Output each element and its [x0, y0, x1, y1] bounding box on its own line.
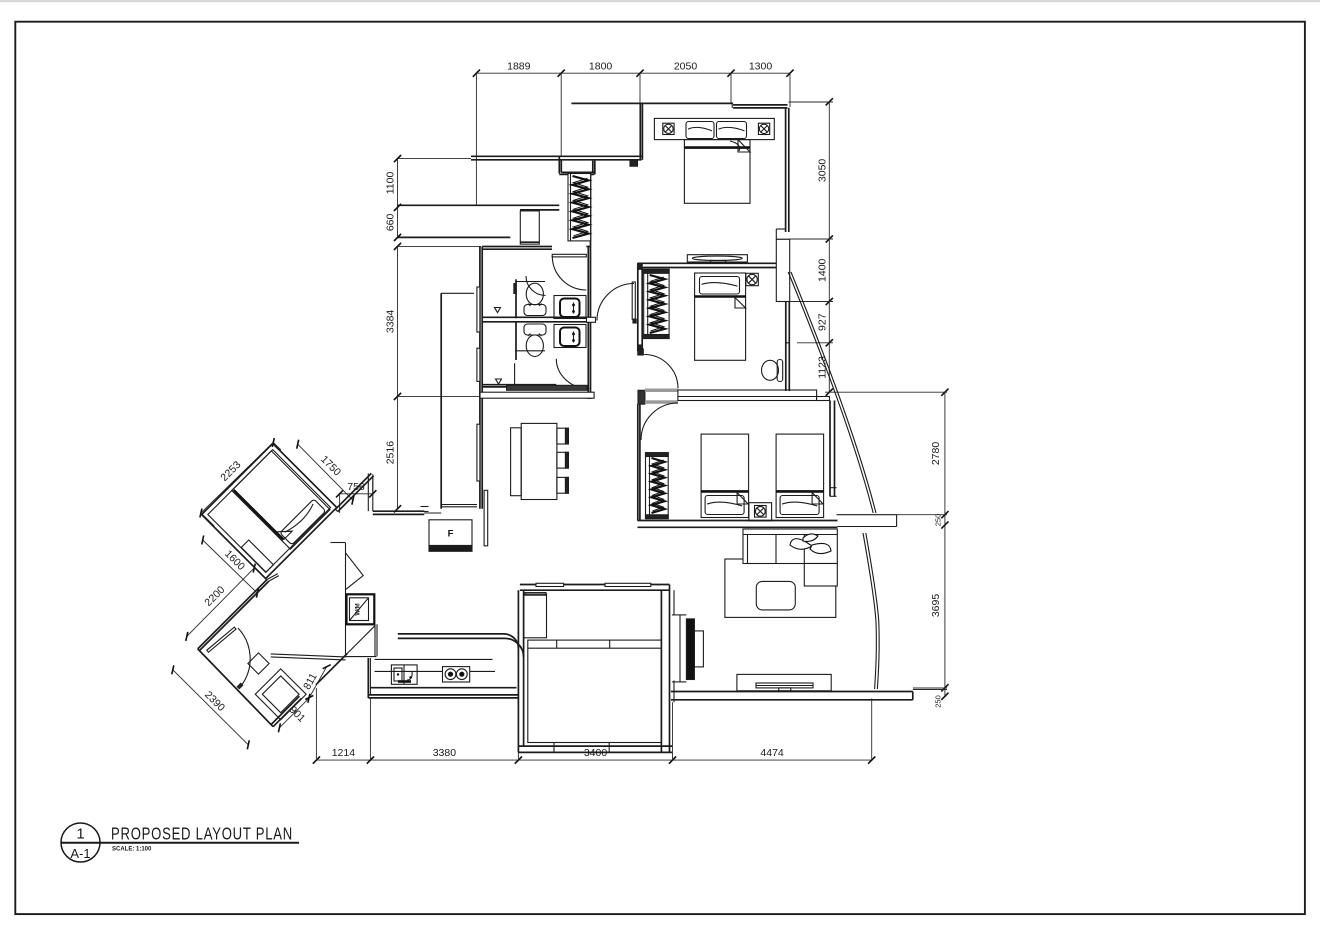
svg-text:250: 250: [933, 695, 942, 708]
svg-text:3384: 3384: [385, 310, 397, 334]
svg-text:4474: 4474: [760, 747, 784, 759]
svg-text:1214: 1214: [332, 747, 356, 759]
svg-text:A-1: A-1: [70, 846, 90, 861]
svg-text:1100: 1100: [385, 172, 397, 195]
svg-text:1: 1: [76, 826, 84, 843]
svg-text:3050: 3050: [816, 159, 828, 183]
svg-text:660: 660: [385, 213, 397, 231]
svg-text:1300: 1300: [749, 61, 773, 73]
svg-text:2516: 2516: [385, 441, 397, 465]
svg-text:2780: 2780: [930, 442, 942, 466]
svg-text:927: 927: [816, 313, 828, 331]
svg-text:1400: 1400: [816, 258, 828, 282]
svg-text:PROPOSED LAYOUT PLAN: PROPOSED LAYOUT PLAN: [111, 824, 293, 844]
svg-text:250: 250: [933, 514, 942, 527]
svg-text:3380: 3380: [433, 747, 457, 759]
svg-text:W/M: W/M: [356, 603, 362, 615]
svg-text:3695: 3695: [930, 594, 942, 618]
svg-text:2050: 2050: [674, 61, 698, 73]
svg-text:F: F: [448, 529, 454, 540]
svg-text:1800: 1800: [589, 61, 613, 73]
svg-text:SCALE: 1:100: SCALE: 1:100: [112, 847, 152, 853]
svg-text:1889: 1889: [507, 61, 531, 73]
